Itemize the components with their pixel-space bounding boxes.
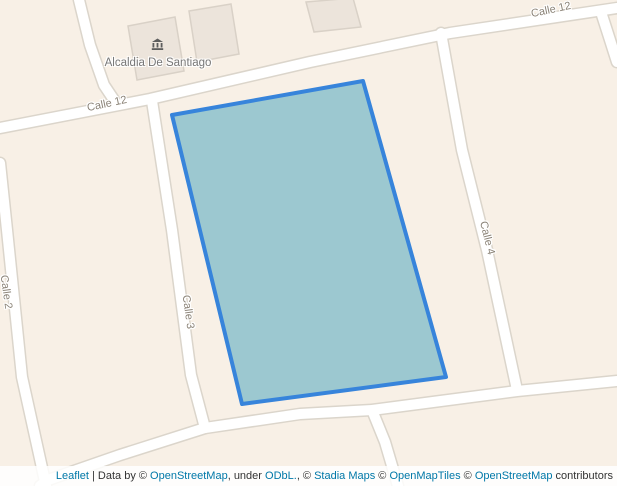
attribution-text: | Data by © (89, 470, 150, 482)
openstreetmap-link[interactable]: OpenStreetMap (150, 470, 228, 482)
attribution-text: , © (297, 470, 314, 482)
buildings-layer (128, 0, 361, 80)
map-canvas[interactable]: Alcaldia De Santiago Calle 12 Calle 12 C… (0, 0, 617, 486)
openmaptiles-link[interactable]: OpenMapTiles (389, 470, 460, 482)
attribution-text: contributors (552, 470, 613, 482)
stadia-maps-link[interactable]: Stadia Maps (314, 470, 375, 482)
building-footprint (189, 4, 239, 62)
building-footprint (306, 0, 361, 32)
leaflet-link[interactable]: Leaflet (56, 470, 89, 482)
attribution-text: © (375, 470, 389, 482)
openstreetmap-link[interactable]: OpenStreetMap (475, 470, 553, 482)
building-footprint (128, 17, 184, 80)
odbl-link[interactable]: ODbL. (265, 470, 297, 482)
attribution-text: , under (228, 470, 265, 482)
attribution-bar: Leaflet | Data by © OpenStreetMap, under… (0, 466, 617, 486)
attribution-text: © (461, 470, 475, 482)
parcel-polygon[interactable] (172, 81, 446, 404)
